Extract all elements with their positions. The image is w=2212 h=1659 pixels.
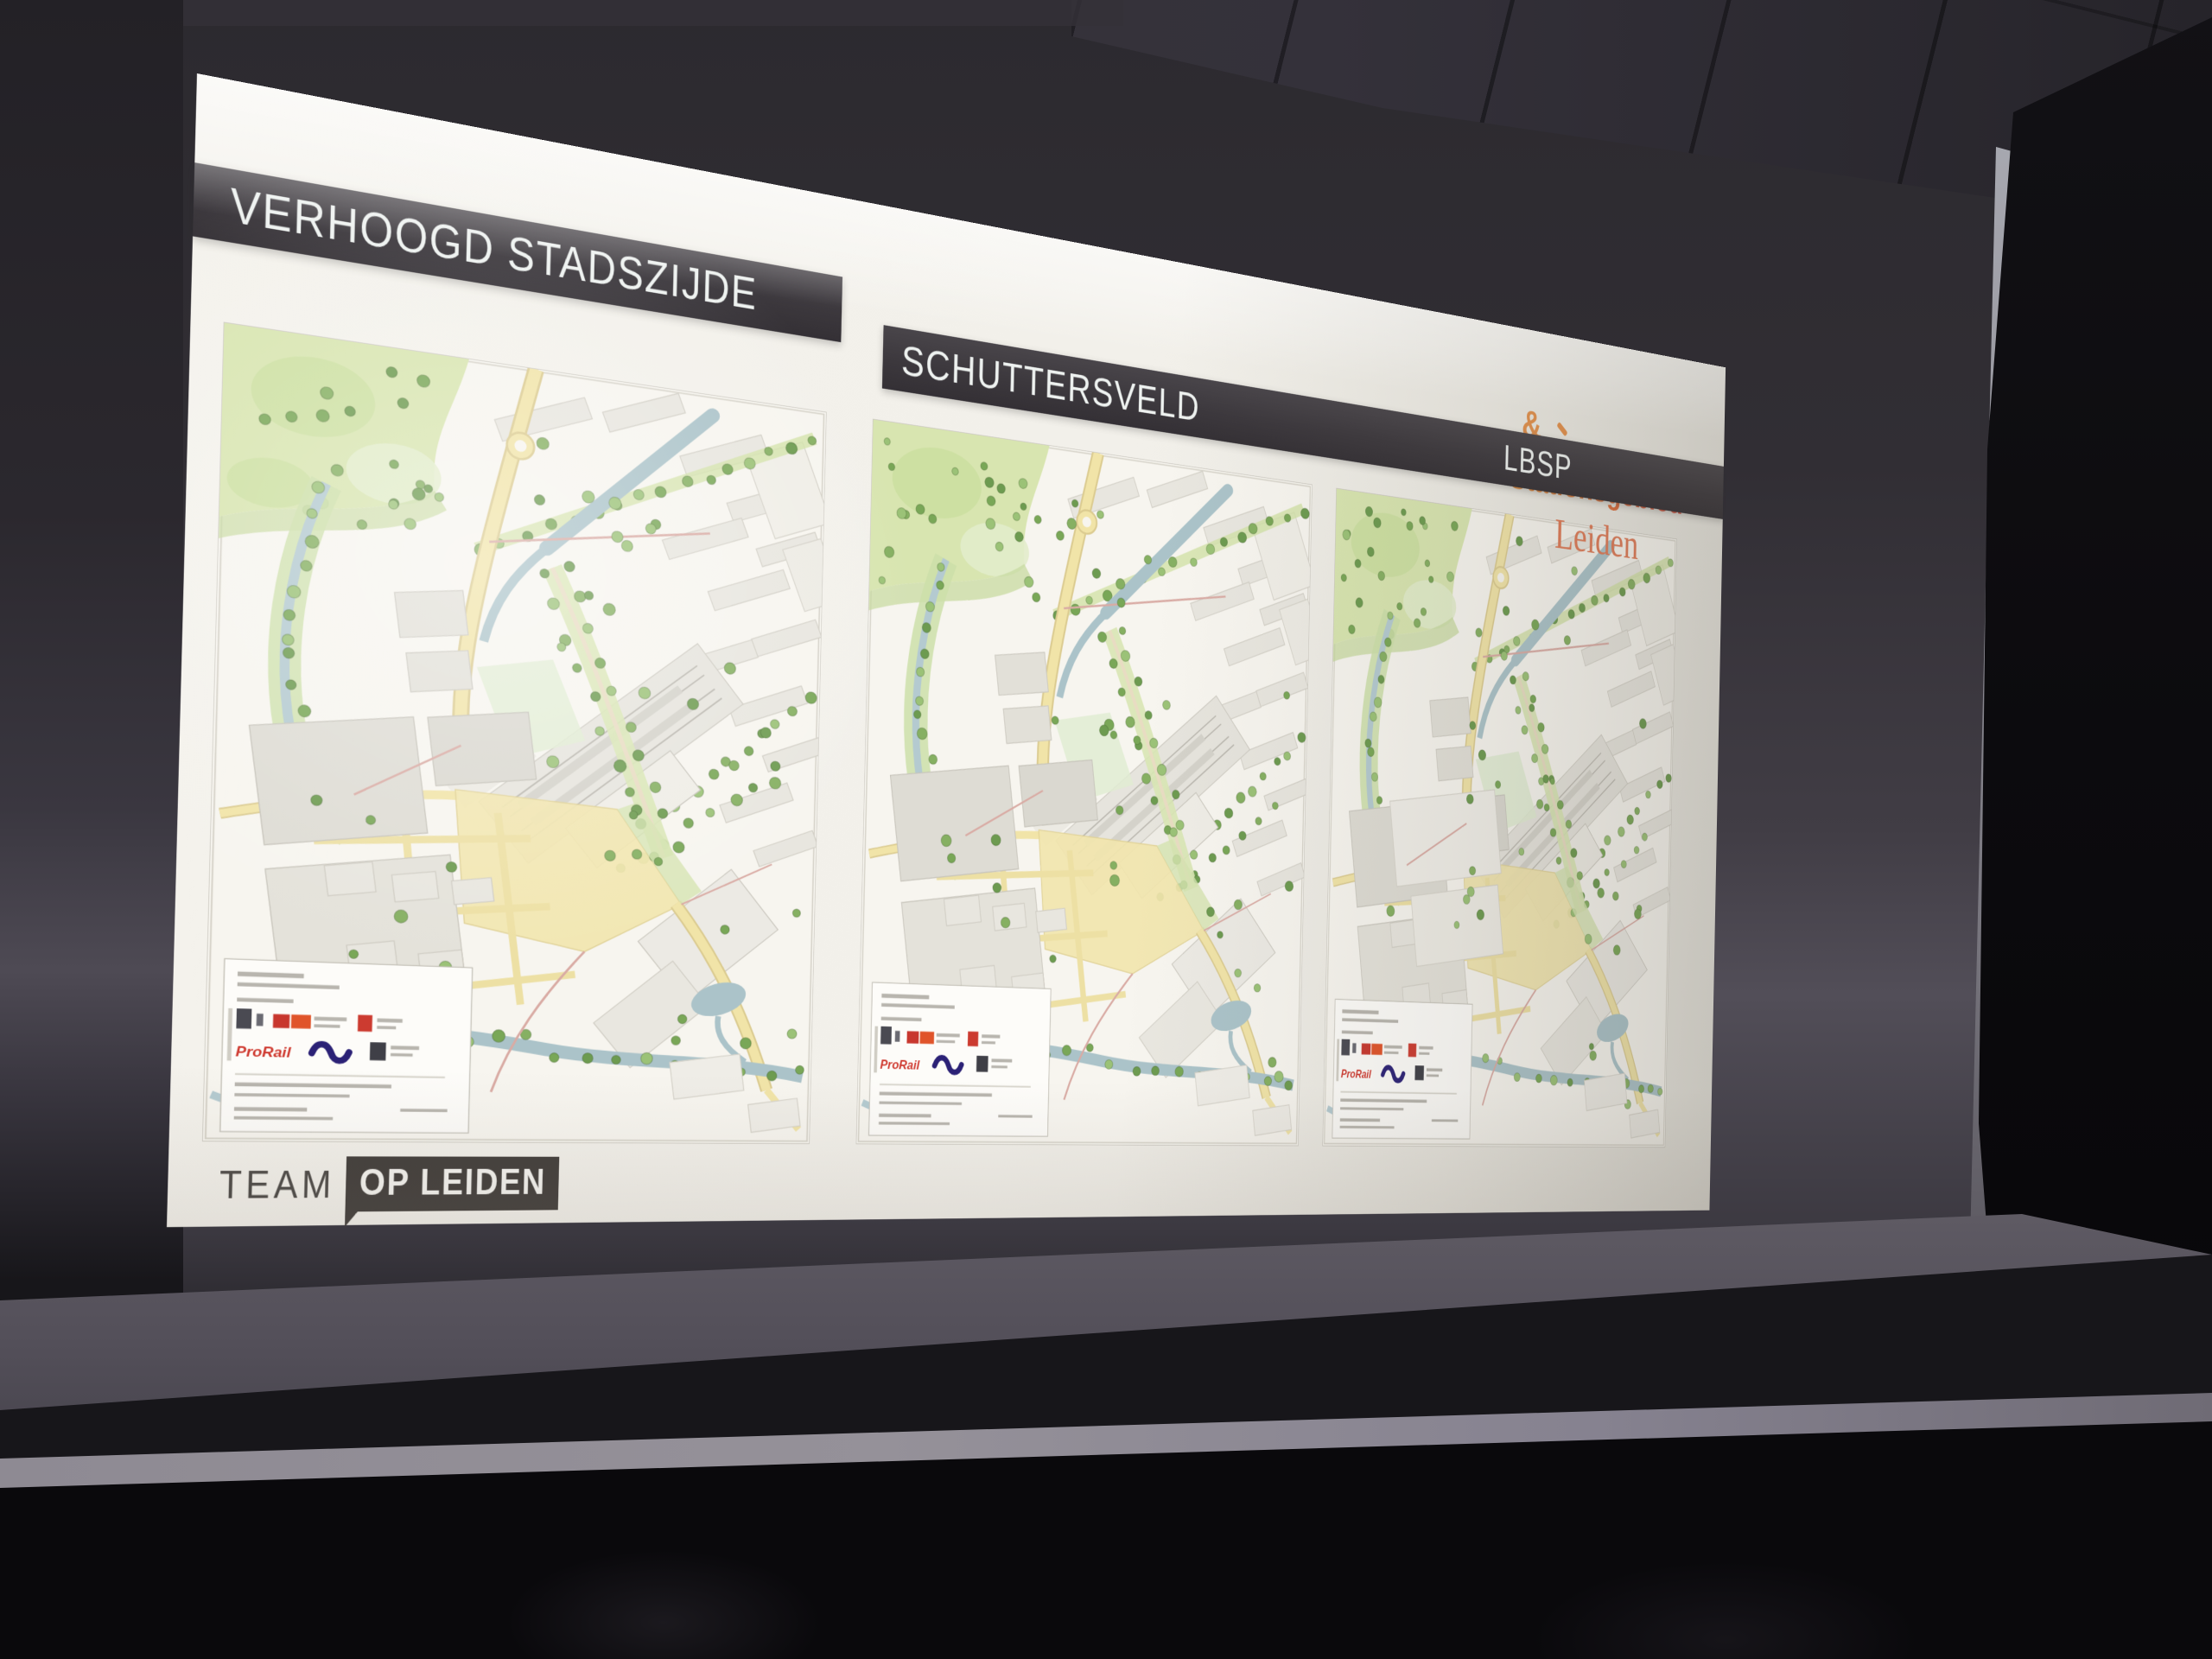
banner-label-lbsp: LBSP bbox=[1503, 429, 1573, 496]
op-leiden-badge: OP LEIDEN bbox=[345, 1156, 559, 1211]
map-illustration-lbsp: ProRail bbox=[1323, 489, 1676, 1147]
svg-text:ProRail: ProRail bbox=[235, 1043, 291, 1060]
team-wordmark: TEAM bbox=[219, 1161, 335, 1208]
map-panel-schuttersveld: ProRail bbox=[856, 420, 1312, 1146]
room-corner-shadow bbox=[1884, 0, 2212, 1348]
map-panel-lbsp: ProRail bbox=[1323, 489, 1676, 1147]
projected-slide: & Stationsgebied Leiden VERHOOGD STADSZI… bbox=[167, 73, 1726, 1227]
map-panel-verhoogd-stadszijde: ProRail bbox=[203, 323, 826, 1144]
svg-text:ProRail: ProRail bbox=[1341, 1067, 1372, 1081]
map-illustration-verhoogd-stadszijde: ProRail bbox=[203, 323, 826, 1144]
logo-tick-icon bbox=[1556, 422, 1567, 437]
map-illustration-schuttersveld: ProRail bbox=[856, 420, 1312, 1146]
photo-presentation-room: & Stationsgebied Leiden VERHOOGD STADSZI… bbox=[0, 0, 2212, 1659]
team-op-leiden-logo: TEAM OP LEIDEN bbox=[219, 1154, 559, 1214]
wall-left bbox=[0, 0, 183, 1348]
svg-text:ProRail: ProRail bbox=[880, 1057, 920, 1072]
